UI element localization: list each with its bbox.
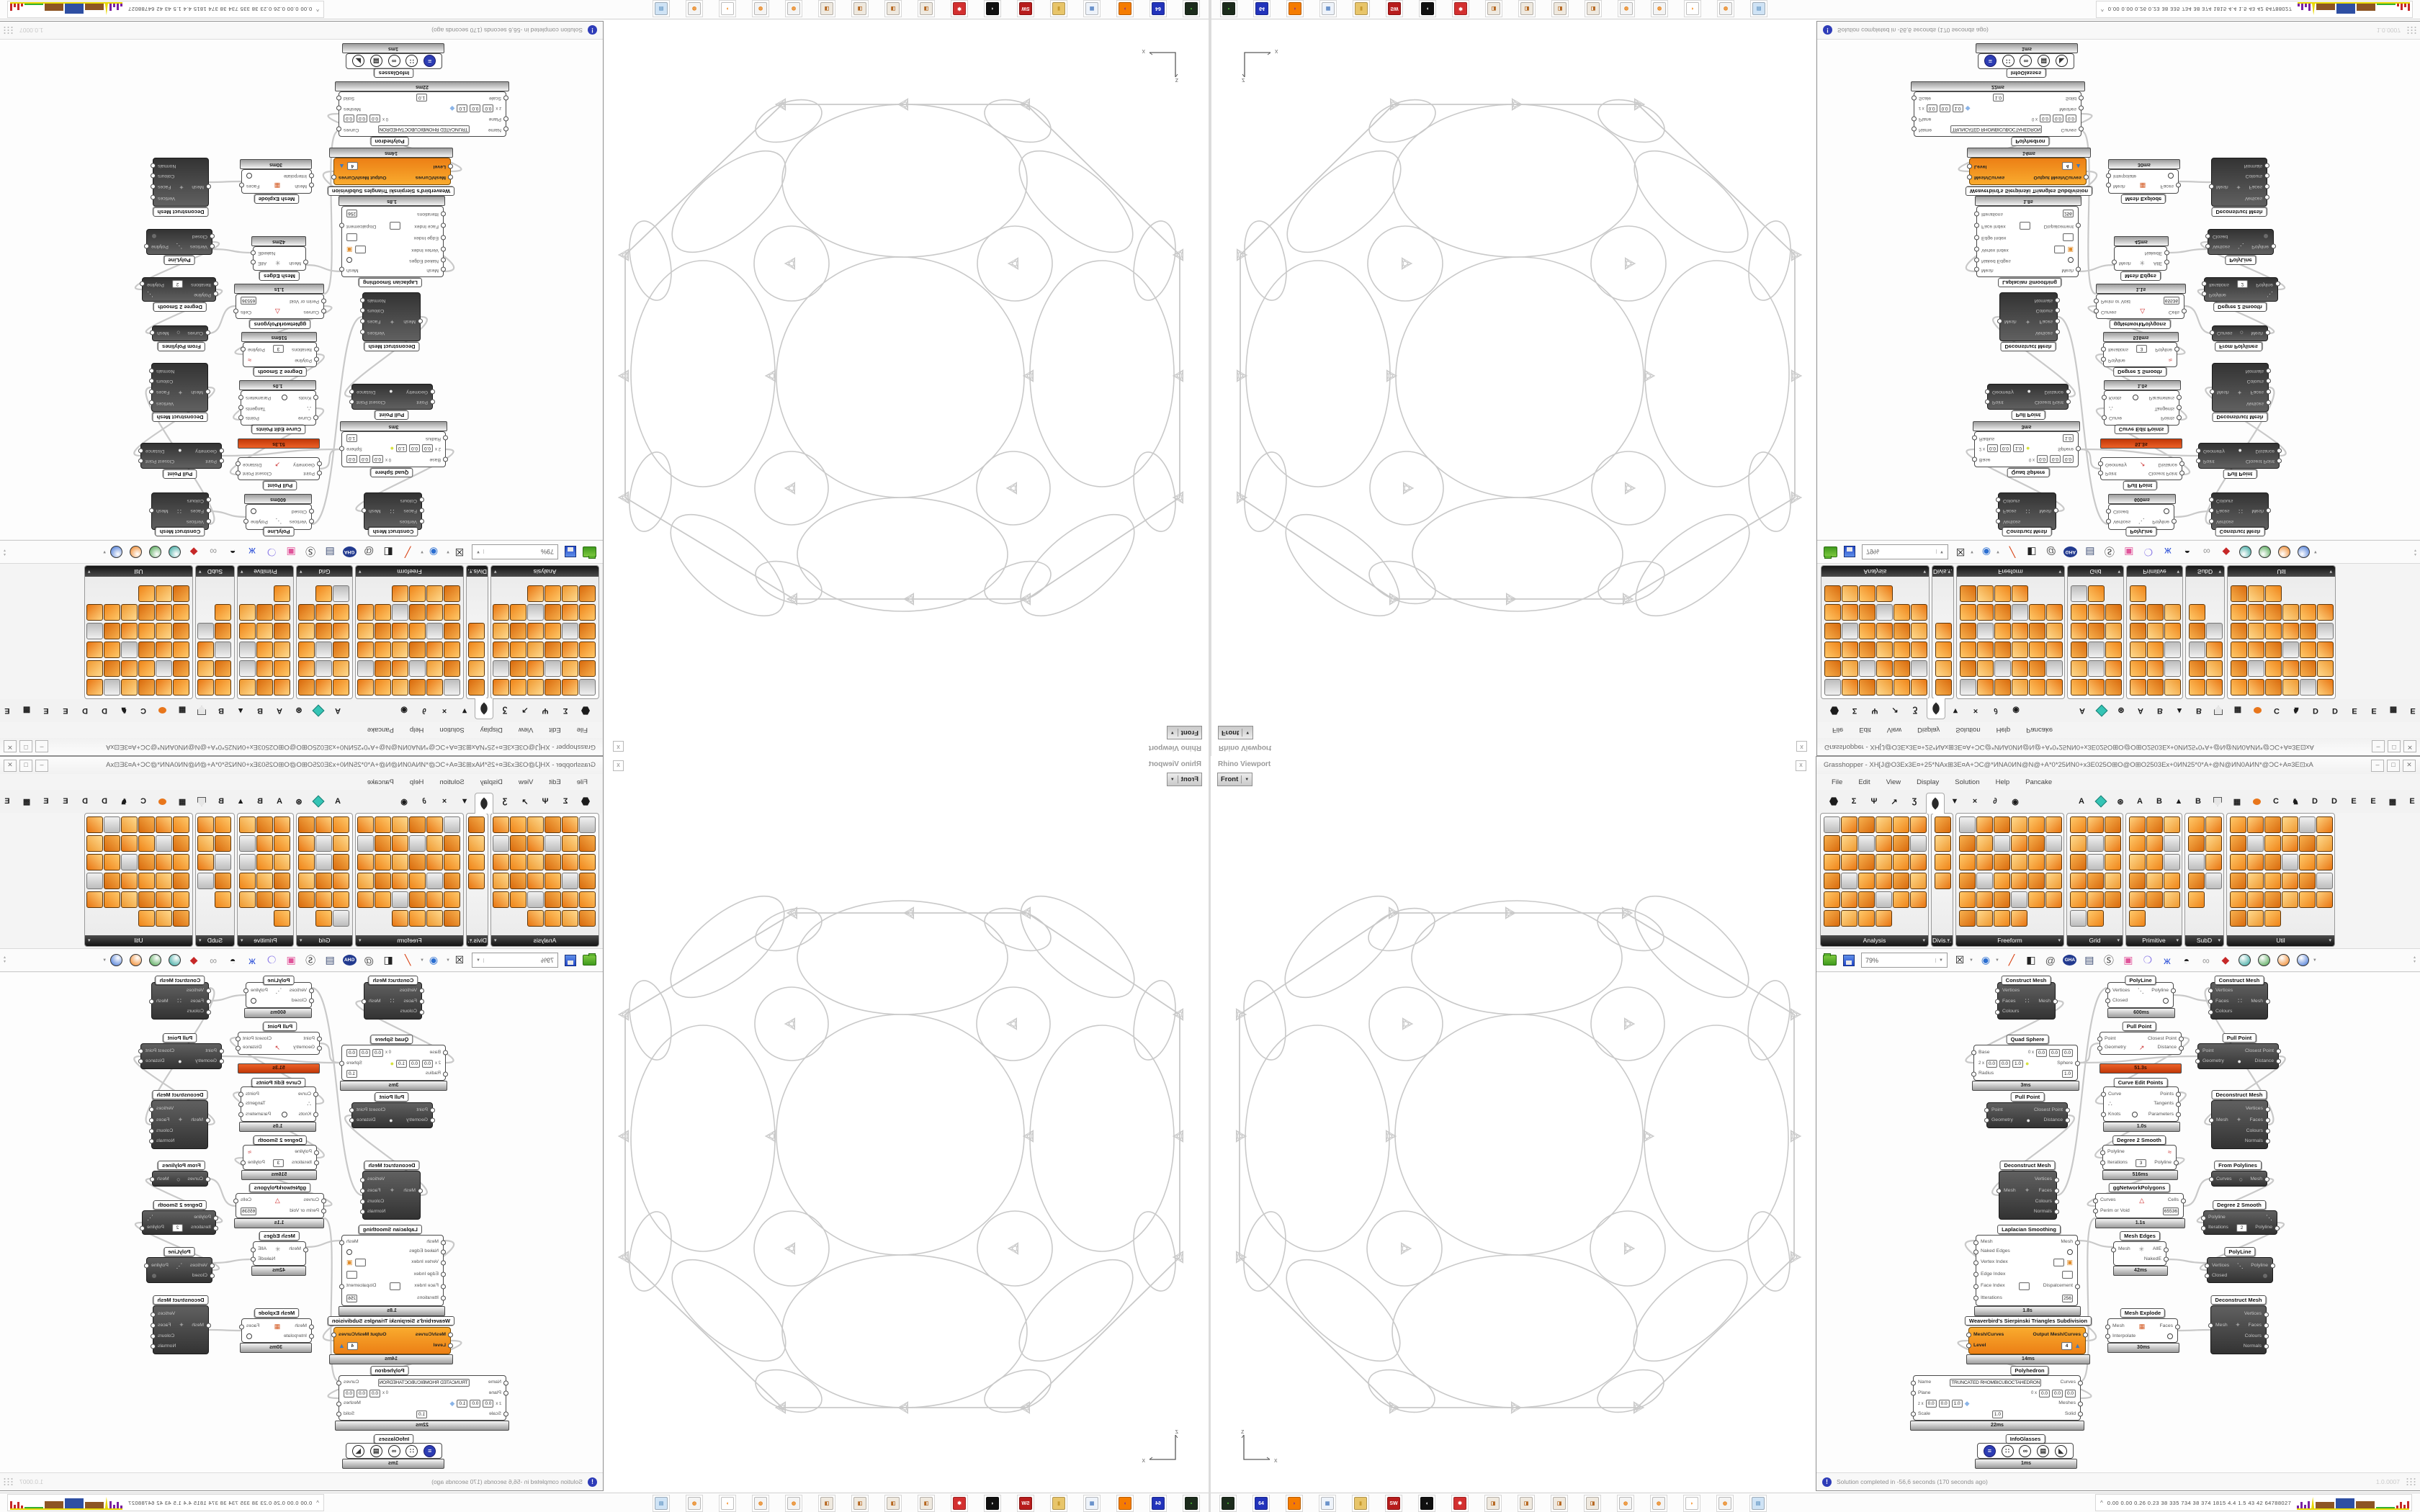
ribbon-icon[interactable] — [2046, 679, 2063, 696]
ribbon-icon[interactable] — [2105, 891, 2121, 908]
ribbon-icon[interactable] — [2230, 854, 2246, 870]
infoglasses-icon-3[interactable]: ▤ — [370, 55, 382, 68]
ribbon-icon[interactable] — [2230, 835, 2246, 852]
toggle-circle[interactable] — [151, 1273, 157, 1279]
open-file-button[interactable] — [583, 953, 597, 968]
value-chip[interactable] — [2020, 222, 2030, 230]
ribbon-group-label[interactable]: Grid▾ — [2068, 566, 2123, 577]
value-chip[interactable]: 0.0 — [346, 1049, 357, 1057]
ribbon-icon[interactable] — [298, 835, 315, 852]
ribbon-icon[interactable] — [1910, 854, 1927, 870]
ribbon-icon[interactable] — [256, 891, 273, 908]
ribbon-icon[interactable] — [1876, 642, 1893, 658]
gh-node-ppl[interactable]: PointClosest PointGeometry●Distance — [351, 384, 433, 410]
ribbon-icon[interactable] — [2011, 910, 2027, 927]
ribbon-icon[interactable] — [409, 891, 426, 908]
ribbon-icon[interactable] — [1994, 623, 2011, 639]
ribbon-icon[interactable] — [375, 623, 391, 639]
ribbon-icon[interactable] — [274, 891, 290, 908]
ribbon-tab-right-2[interactable]: ⊛ — [2112, 793, 2129, 810]
gh-node-pl1[interactable]: Vertices⋱PolylineClosed — [2107, 982, 2174, 1008]
ribbon-icon[interactable] — [1935, 816, 1951, 833]
value-chip[interactable]: 2 — [172, 280, 183, 288]
gem-icon[interactable]: ◆ — [187, 545, 201, 559]
cluster-icon[interactable]: ◓ — [225, 545, 240, 559]
gh-node-wb[interactable]: Mesh/CurvesOutput Mesh/CurvesLevel4▲ — [333, 1327, 451, 1354]
ribbon-icon[interactable] — [138, 910, 155, 927]
gh-node-dmr1[interactable]: VerticesMesh✦FacesColoursNormals — [151, 363, 208, 412]
ribbon-icon[interactable] — [1841, 891, 1857, 908]
ribbon-icon[interactable] — [2129, 816, 2146, 833]
ribbon-icon[interactable] — [375, 642, 391, 658]
hint-icon[interactable]: ❍ — [264, 545, 279, 559]
gh-node-gg[interactable]: Curves△CellsPerim or Void65536 — [236, 294, 324, 319]
ribbon-icon[interactable] — [2164, 623, 2181, 639]
ribbon-group-label[interactable]: Primitive▾ — [238, 566, 293, 577]
ribbon-icon[interactable] — [468, 660, 485, 677]
value-chip[interactable]: 1.0 — [416, 1410, 427, 1418]
ribbon-icon[interactable] — [2282, 623, 2299, 639]
ribbon-icon[interactable] — [2299, 891, 2316, 908]
ribbon-icon[interactable] — [579, 873, 596, 889]
ribbon-icon[interactable] — [2011, 873, 2027, 889]
app-console-icon[interactable]: ▪ — [1220, 0, 1237, 17]
ribbon-icon[interactable] — [510, 835, 526, 852]
ribbon-icon[interactable] — [1976, 910, 1993, 927]
ribbon-icon[interactable] — [2265, 623, 2282, 639]
ribbon-icon[interactable] — [2105, 623, 2122, 639]
ribbon-icon[interactable] — [2028, 854, 2045, 870]
ribbon-icon[interactable] — [173, 585, 189, 602]
gh-node-d2sm[interactable]: Polyline≈Iterations3Polyline — [243, 1145, 317, 1170]
ribbon-icon[interactable] — [315, 623, 332, 639]
toggle-circle[interactable] — [246, 1333, 252, 1339]
app-gimp-dark-icon[interactable]: ◖ — [984, 1495, 1001, 1512]
value-chip[interactable]: 3 — [2136, 1159, 2146, 1167]
menu-display[interactable]: Display — [1909, 778, 1947, 786]
ribbon-icon[interactable] — [121, 854, 138, 870]
ribbon-icon[interactable] — [197, 642, 214, 658]
value-chip[interactable]: 0.0 — [372, 1049, 383, 1057]
value-chip[interactable]: 0.0 — [344, 1390, 354, 1398]
ribbon-icon[interactable] — [426, 679, 443, 696]
ribbon-icon[interactable] — [2087, 910, 2104, 927]
ribbon-icon[interactable] — [2105, 835, 2121, 852]
value-chip[interactable]: 3 — [273, 345, 284, 353]
ribbon-icon[interactable] — [357, 604, 374, 621]
ribbon-icon[interactable] — [2029, 660, 2045, 677]
value-chip[interactable]: 0.0 — [2039, 1390, 2050, 1398]
ribbon-icon[interactable] — [493, 679, 509, 696]
gh-node-fp[interactable]: Curves○Mesh — [152, 1171, 208, 1187]
menu-file[interactable]: File — [1824, 726, 1851, 734]
ribbon-group-label[interactable]: Util▾ — [2228, 566, 2335, 577]
gh-node-ph[interactable]: NameTRUNCATED RHOMBICUBOCTAHEDRONCurvesP… — [1913, 1375, 2081, 1421]
app-solidworks-icon[interactable]: SW — [1386, 0, 1403, 17]
ribbon-icon[interactable] — [104, 679, 120, 696]
ribbon-icon[interactable] — [579, 816, 596, 833]
system-monitor-widget[interactable]: ^0.00 0.00 0.26 0.23 38 335 734 38 374 1… — [7, 1494, 324, 1511]
ribbon-icon[interactable] — [274, 854, 290, 870]
chevron-down-icon[interactable]: ▼ — [102, 550, 107, 554]
ribbon-icon[interactable] — [104, 604, 120, 621]
ribbon-icon[interactable] — [1977, 585, 1994, 602]
ribbon-icon[interactable] — [562, 835, 578, 852]
value-chip[interactable]: 0.0 — [2062, 1049, 2073, 1057]
ribbon-tab-right-11[interactable]: ♞ — [2287, 793, 2304, 810]
menu-display[interactable]: Display — [1909, 726, 1948, 734]
ribbon-icon[interactable] — [562, 660, 578, 677]
app-paint-2-icon[interactable]: ◨ — [1518, 1495, 1535, 1512]
ribbon-icon[interactable] — [1935, 873, 1951, 889]
ribbon-icon[interactable] — [493, 642, 509, 658]
ribbon-tab-right-8[interactable]: ▦ — [2229, 702, 2246, 719]
app-folder-icon[interactable]: ▮ — [1353, 0, 1370, 17]
ribbon-icon[interactable] — [1875, 873, 1892, 889]
ribbon-icon[interactable] — [2316, 891, 2333, 908]
gh-node-ppr[interactable]: PointClosest PointGeometry●Distance — [2198, 443, 2280, 469]
close-icon[interactable]: x — [613, 760, 624, 771]
ribbon-icon[interactable] — [2188, 854, 2205, 870]
value-chip[interactable]: 1.0 — [457, 104, 467, 112]
ribbon-tab-right-15[interactable]: E — [37, 702, 55, 719]
ribbon-icon[interactable] — [1824, 873, 1840, 889]
ribbon-icon[interactable] — [579, 910, 596, 927]
ribbon-icon[interactable] — [333, 910, 349, 927]
ribbon-icon[interactable] — [444, 679, 460, 696]
ribbon-icon[interactable] — [1994, 854, 2010, 870]
value-chip[interactable]: 65536 — [2163, 1207, 2179, 1215]
value-chip[interactable]: 0.0 — [409, 1060, 420, 1068]
save-file-button[interactable] — [563, 953, 578, 968]
ribbon-icon[interactable] — [2247, 873, 2264, 889]
app-paint-2-icon[interactable]: ◨ — [1518, 0, 1536, 17]
ribbon-icon[interactable] — [215, 679, 231, 696]
value-chip[interactable] — [390, 222, 400, 230]
ribbon-icon[interactable] — [357, 873, 374, 889]
ribbon-group-label[interactable]: Primitive▾ — [2126, 935, 2182, 946]
ribbon-icon[interactable] — [298, 854, 315, 870]
toggle-circle[interactable] — [2132, 1112, 2138, 1117]
gh-node-d2sr[interactable]: Polyline⋱Iterations2Polyline — [2204, 277, 2278, 302]
ribbon-icon[interactable] — [2188, 835, 2205, 852]
ribbon-icon[interactable] — [1960, 660, 1976, 677]
ribbon-icon[interactable] — [2087, 816, 2104, 833]
ribbon-icon[interactable] — [138, 873, 155, 889]
ribbon-icon[interactable] — [544, 835, 561, 852]
ribbon-icon[interactable] — [256, 679, 273, 696]
menu-solution[interactable]: Solution — [1947, 778, 1987, 786]
ribbon-icon[interactable] — [1977, 679, 1994, 696]
ribbon-icon[interactable] — [333, 679, 349, 696]
ribbon-icon[interactable] — [527, 873, 544, 889]
zoom-level-select[interactable]: 79%▼ — [1862, 544, 1948, 559]
gh-node-cm1[interactable]: VerticesFaces∷MeshColours — [1997, 982, 2056, 1020]
ribbon-icon[interactable] — [2105, 679, 2122, 696]
ribbon-icon[interactable] — [2029, 604, 2045, 621]
ribbon-icon[interactable] — [579, 679, 596, 696]
ribbon-icon[interactable] — [1841, 873, 1857, 889]
ribbon-icon[interactable] — [1875, 854, 1892, 870]
toggle-circle[interactable] — [282, 1112, 287, 1117]
gh-node-cep[interactable]: CurvePoints∴TangentsKnotsParameters — [2104, 390, 2179, 426]
ribbon-icon[interactable] — [527, 910, 544, 927]
gh-node-dml[interactable]: VerticesMesh✦FacesColoursNormals — [1999, 292, 2058, 341]
ribbon-icon[interactable] — [444, 891, 460, 908]
gh-node-ph[interactable]: NameTRUNCATED RHOMBICUBOCTAHEDRONCurvesP… — [339, 91, 506, 137]
sketch-button[interactable]: ╱ — [2005, 545, 2020, 559]
ribbon-icon[interactable] — [1935, 854, 1951, 870]
ribbon-icon[interactable] — [298, 623, 315, 639]
ribbon-icon[interactable] — [2164, 835, 2180, 852]
save-file-button[interactable] — [563, 545, 578, 559]
ribbon-icon[interactable] — [138, 660, 155, 677]
ribbon-icon[interactable] — [1960, 623, 1976, 639]
ribbon-icon[interactable] — [274, 679, 290, 696]
ribbon-icon[interactable] — [2247, 854, 2264, 870]
ribbon-icon[interactable] — [2129, 854, 2146, 870]
value-chip[interactable]: 0.0 — [2040, 114, 2051, 122]
ribbon-icon[interactable] — [392, 816, 408, 833]
ribbon-icon[interactable] — [357, 660, 374, 677]
ribbon-icon[interactable] — [409, 623, 426, 639]
app-blender-3-icon[interactable]: ◍ — [686, 0, 703, 17]
menu-solution[interactable]: Solution — [1948, 726, 1988, 734]
ribbon-icon[interactable] — [274, 642, 290, 658]
gh-node-wb[interactable]: Mesh/CurvesOutput Mesh/CurvesLevel4▲ — [333, 158, 451, 185]
value-chip[interactable]: 4 — [347, 162, 358, 170]
ribbon-icon[interactable] — [2087, 891, 2104, 908]
chevron-down-icon[interactable]: ▼ — [2313, 958, 2317, 963]
toggle-circle[interactable] — [2133, 395, 2138, 400]
ribbon-tab-left-3[interactable]: ↗ — [516, 793, 534, 810]
value-chip[interactable]: 0.0 — [1986, 1060, 1997, 1068]
ribbon-tab-right-1[interactable] — [2092, 793, 2110, 810]
ribbon-icon[interactable] — [2028, 816, 2045, 833]
ribbon-icon[interactable] — [562, 891, 578, 908]
ribbon-icon[interactable] — [2188, 873, 2205, 889]
ribbon-tab-right-4[interactable]: B — [251, 702, 269, 719]
infoglasses-icon-4[interactable]: ◣ — [352, 1445, 364, 1457]
ribbon-icon[interactable] — [392, 623, 408, 639]
ribbon-icon[interactable] — [156, 835, 172, 852]
ribbon-icon[interactable] — [527, 604, 544, 621]
ribbon-icon[interactable] — [1976, 873, 1993, 889]
preview-button[interactable]: ◉ — [426, 953, 441, 968]
value-chip[interactable]: 65536 — [2164, 297, 2179, 305]
ribbon-icon[interactable] — [2247, 816, 2264, 833]
ribbon-icon[interactable] — [1994, 816, 2010, 833]
ribbon-tab-left-4[interactable]: Ʒ — [496, 702, 514, 719]
menu-file[interactable]: File — [569, 726, 596, 734]
ribbon-icon[interactable] — [527, 660, 544, 677]
value-chip[interactable]: 1.0 — [1952, 1400, 1963, 1408]
ribbon-tab-right-15[interactable]: E — [2365, 702, 2383, 719]
ribbon-icon[interactable] — [2105, 604, 2122, 621]
chevron-down-icon[interactable]: ▼ — [420, 550, 424, 554]
app-gimp-dark-icon[interactable]: ◖ — [1419, 0, 1436, 17]
value-chip[interactable]: 1.0 — [416, 94, 427, 102]
ribbon-icon[interactable] — [2248, 679, 2264, 696]
gh-node-ppr[interactable]: PointClosest PointGeometry●Distance — [140, 443, 222, 469]
ribbon-icon[interactable] — [1959, 891, 1976, 908]
ribbon-tab-right-10[interactable]: C — [135, 702, 152, 719]
toggle-circle[interactable] — [2068, 257, 2074, 263]
ribbon-icon[interactable] — [2130, 604, 2146, 621]
app-solidworks-icon[interactable]: SW — [1385, 1495, 1402, 1512]
ribbon-group-label[interactable]: Divis…▾ — [467, 566, 488, 577]
ribbon-icon[interactable] — [156, 604, 172, 621]
ribbon-tab-right-0[interactable]: A — [2073, 793, 2090, 810]
app-paint-1-icon[interactable]: ◨ — [1485, 0, 1502, 17]
ribbon-icon[interactable] — [1876, 623, 1893, 639]
ribbon-icon[interactable] — [1894, 679, 1910, 696]
ribbon-icon[interactable] — [1824, 816, 1840, 833]
chevron-down-icon[interactable]: ▼ — [1995, 958, 1999, 963]
gha-icon[interactable]: GHA — [2063, 545, 2078, 559]
ribbon-tab-right-9[interactable] — [2249, 702, 2266, 719]
ribbon-icon[interactable] — [121, 891, 138, 908]
gh-node-dmr2[interactable]: VerticesMesh✦FacesColoursNormals — [2211, 158, 2267, 207]
ribbon-icon[interactable] — [2088, 642, 2105, 658]
app-paint-4-icon[interactable]: ◨ — [818, 1495, 835, 1512]
maximize-button[interactable]: □ — [19, 740, 32, 752]
ribbon-icon[interactable] — [357, 891, 374, 908]
infoglasses-icon-3[interactable]: ▤ — [2037, 1445, 2049, 1457]
ribbon-icon[interactable] — [173, 910, 189, 927]
ribbon-icon[interactable] — [2070, 854, 2087, 870]
ribbon-icon[interactable] — [1824, 604, 1841, 621]
gh-node-ppl[interactable]: PointClosest PointGeometry●Distance — [1986, 1102, 2068, 1128]
ribbon-icon[interactable] — [104, 835, 120, 852]
gh-node-cm1[interactable]: VerticesFaces∷MeshColours — [364, 492, 422, 530]
ribbon-icon[interactable] — [1977, 604, 1994, 621]
chevron-up-icon[interactable]: ^ — [2101, 6, 2104, 13]
ribbon-icon[interactable] — [274, 604, 290, 621]
app-paint-2-icon[interactable]: ◨ — [884, 0, 902, 17]
ribbon-icon[interactable] — [562, 604, 578, 621]
value-chip[interactable]: 0.0 — [422, 1060, 433, 1068]
value-chip[interactable]: 3 — [273, 1159, 284, 1167]
ribbon-icon[interactable] — [562, 642, 578, 658]
ribbon-icon[interactable] — [1911, 604, 1927, 621]
app-paint-2-icon[interactable]: ◨ — [884, 1495, 902, 1512]
menu-help[interactable]: Help — [402, 778, 432, 786]
ribbon-icon[interactable] — [121, 642, 138, 658]
preview-button[interactable]: ◉ — [426, 545, 441, 559]
ribbon-icon[interactable] — [510, 816, 526, 833]
open-file-button[interactable] — [1823, 545, 1837, 559]
ribbon-icon[interactable] — [156, 679, 172, 696]
infoglasses-icon-0[interactable]: ≡ — [423, 55, 436, 68]
ribbon-icon[interactable] — [375, 679, 391, 696]
ribbon-icon[interactable] — [333, 873, 349, 889]
gh-node-ppr[interactable]: PointClosest PointGeometry●Distance — [140, 1043, 222, 1069]
value-chip[interactable]: 0.0 — [1987, 445, 1998, 453]
value-chip[interactable]: 0.0 — [1926, 1400, 1937, 1408]
value-chip[interactable]: 1.0 — [2062, 1070, 2073, 1078]
menu-solution[interactable]: Solution — [431, 726, 472, 734]
app-gimp-dark-icon[interactable]: ◖ — [1418, 1495, 1435, 1512]
ribbon-tab-right-5[interactable]: ▲ — [2171, 702, 2188, 719]
ribbon-icon[interactable] — [315, 854, 332, 870]
system-monitor-widget[interactable]: ^0.00 0.00 0.26 0.23 38 335 734 38 374 1… — [2095, 1494, 2412, 1511]
ribbon-icon[interactable] — [215, 891, 231, 908]
ribbon-icon[interactable] — [2282, 816, 2298, 833]
ribbon-icon[interactable] — [298, 660, 315, 677]
sphere-teal-icon[interactable] — [2238, 953, 2252, 968]
ribbon-icon[interactable] — [138, 891, 155, 908]
gene-pool-icon[interactable]: ж — [2161, 545, 2175, 559]
menu-pancake[interactable]: Pancake — [359, 726, 402, 734]
ribbon-icon[interactable] — [239, 642, 256, 658]
infoglasses-icon-3[interactable]: ▤ — [2038, 55, 2050, 68]
ribbon-icon[interactable] — [1977, 660, 1994, 677]
ribbon-icon[interactable] — [2299, 835, 2316, 852]
ribbon-icon[interactable] — [2247, 835, 2264, 852]
ribbon-icon[interactable] — [2105, 642, 2122, 658]
ribbon-tab-right-13[interactable]: D — [76, 793, 94, 810]
gh-node-dmr2[interactable]: VerticesMesh✦FacesColoursNormals — [153, 158, 209, 207]
ribbon-tab-left-4[interactable]: Ʒ — [1906, 793, 1923, 810]
value-chip[interactable]: 0.0 — [2052, 1390, 2063, 1398]
ribbon-icon[interactable] — [1893, 854, 1909, 870]
sphere-blue-icon[interactable] — [2296, 953, 2311, 968]
ribbon-icon[interactable] — [2189, 679, 2205, 696]
gh-node-dmr2[interactable]: VerticesMesh✦FacesColoursNormals — [2210, 1305, 2267, 1354]
ribbon-icon[interactable] — [1994, 642, 2011, 658]
ribbon-icon[interactable] — [2045, 891, 2062, 908]
ribbon-tab-left-9[interactable]: ◉ — [395, 793, 413, 810]
zoom-level-select[interactable]: 79%▼ — [472, 953, 558, 968]
ribbon-icon[interactable] — [375, 660, 391, 677]
app-notepad-icon[interactable]: ▤ — [653, 1495, 670, 1512]
menu-view[interactable]: View — [511, 726, 541, 734]
ribbon-icon[interactable] — [409, 854, 426, 870]
ribbon-icon[interactable] — [2231, 604, 2247, 621]
ribbon-icon[interactable] — [2164, 873, 2180, 889]
ribbon-icon[interactable] — [2189, 660, 2205, 677]
ribbon-icon[interactable] — [2028, 873, 2045, 889]
ribbon-icon[interactable] — [2206, 623, 2223, 639]
app-firefox-icon[interactable]: ◗ — [1116, 0, 1134, 17]
ribbon-icon[interactable] — [239, 604, 256, 621]
ribbon-icon[interactable] — [1976, 891, 1993, 908]
app-settings-red-icon[interactable]: ✱ — [1451, 1495, 1469, 1512]
ribbon-tab-left-6[interactable]: ▼ — [456, 793, 473, 810]
value-chip[interactable]: 0.0 — [2063, 455, 2074, 463]
zoom-extents-button[interactable]: ☒ — [1953, 953, 1967, 968]
ribbon-icon[interactable] — [1875, 910, 1892, 927]
ribbon-icon[interactable] — [2248, 604, 2264, 621]
infoglasses-icon-2[interactable]: ∞ — [388, 1445, 400, 1457]
ribbon-icon[interactable] — [2300, 679, 2316, 696]
menu-view[interactable]: View — [511, 778, 541, 786]
ribbon-group-label[interactable]: Util▾ — [85, 566, 192, 577]
close-button[interactable]: ✕ — [4, 760, 17, 772]
menu-edit[interactable]: Edit — [1851, 726, 1878, 734]
ribbon-icon[interactable] — [274, 816, 290, 833]
ribbon-group-label[interactable]: Divis…▾ — [1932, 566, 1953, 577]
ribbon-icon[interactable] — [2164, 854, 2180, 870]
ribbon-icon[interactable] — [1894, 623, 1910, 639]
ribbon-tab-left-4[interactable]: Ʒ — [1906, 702, 1924, 719]
ribbon-tab-right-17[interactable]: E — [2404, 702, 2420, 719]
app-firefox-icon[interactable]: ◗ — [1286, 0, 1304, 17]
gh-node-wb[interactable]: Mesh/CurvesOutput Mesh/CurvesLevel4▲ — [1968, 1327, 2086, 1354]
obscure-icon[interactable]: ▣ — [284, 953, 298, 968]
ribbon-icon[interactable] — [138, 604, 155, 621]
